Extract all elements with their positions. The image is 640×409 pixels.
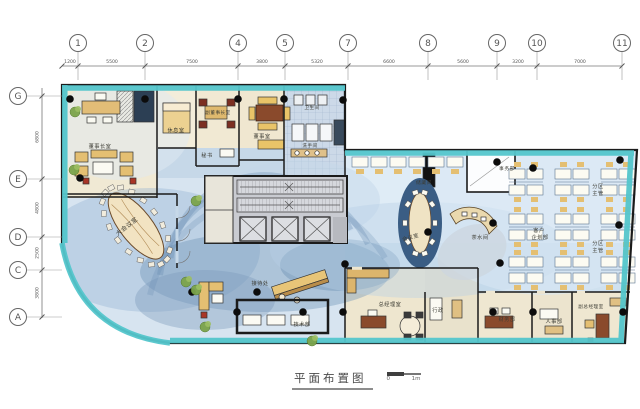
dimension-text: 3800 [256, 59, 268, 65]
chair [577, 197, 584, 202]
desk [527, 273, 543, 283]
column [280, 95, 288, 103]
elevator-3 [304, 217, 330, 241]
gm-sofa [347, 269, 389, 278]
conference-chair [117, 185, 124, 190]
room-label: 储藏间 [416, 179, 432, 186]
chair [531, 197, 538, 202]
desk [555, 169, 571, 179]
grid-bubble-number: 2 [142, 39, 148, 49]
deputy-gm-desk [596, 314, 609, 338]
floor-plan-sheet: 1245789101112005500750038005320660056003… [0, 0, 640, 409]
chair [577, 162, 584, 167]
chair [514, 162, 521, 167]
dimension-text: 5320 [311, 59, 323, 65]
desk [352, 157, 368, 167]
meeting-chair [433, 220, 437, 226]
chair [560, 242, 567, 247]
desk [601, 230, 617, 240]
column [253, 288, 261, 296]
room-label: 休息室 [167, 126, 184, 134]
grid-bubble-letter: G [15, 92, 22, 102]
room-label: 财务部 [498, 315, 515, 323]
toilet-stall [306, 124, 318, 141]
chair [577, 242, 584, 247]
room-label: 技术部 [293, 320, 310, 328]
grid-bubble-number: 5 [282, 39, 288, 49]
chair [531, 285, 538, 290]
grid-bubble-letter: A [15, 313, 22, 323]
scale-zero-label: 0 [387, 376, 391, 382]
dimension-text: 1200 [64, 59, 76, 65]
chair [432, 169, 440, 174]
drawing-title: 平面布置图 [292, 370, 373, 390]
chair [606, 207, 613, 212]
desk [390, 157, 406, 167]
grid-bubble-number: 11 [616, 39, 627, 49]
desk [428, 157, 444, 167]
conference-chair [166, 235, 171, 241]
gm-desk [361, 316, 386, 328]
chair [531, 242, 538, 247]
chair [560, 250, 567, 255]
desk [447, 157, 463, 167]
room-label: 茶水间 [471, 233, 488, 241]
chair [375, 169, 383, 174]
column [529, 164, 537, 172]
desk [555, 185, 571, 195]
desk [573, 185, 589, 195]
chair [394, 169, 402, 174]
room-label: 分区 [592, 182, 603, 190]
dimension-text: 7000 [574, 59, 586, 65]
chair [560, 197, 567, 202]
gm-round-table [400, 316, 420, 336]
desk [555, 257, 571, 267]
dimension-text: 5600 [457, 59, 469, 65]
column [616, 156, 624, 164]
building-core [205, 176, 347, 243]
chair [514, 285, 521, 290]
conference-chair [148, 262, 155, 267]
grid-bubble-letter: C [15, 266, 21, 276]
dimension-text: 4800 [35, 202, 41, 214]
director-table [256, 105, 283, 121]
grid-bubble-number: 7 [345, 39, 351, 49]
column [529, 308, 537, 316]
chair [413, 169, 421, 174]
desk [509, 185, 525, 195]
chair [514, 197, 521, 202]
column [615, 221, 623, 229]
grid-bubble-number: 9 [494, 39, 500, 49]
room-label: 副总经理室 [578, 303, 603, 310]
desk [371, 157, 387, 167]
chair [606, 285, 613, 290]
secretary-desk [220, 149, 234, 157]
desk [573, 273, 589, 283]
desk [509, 257, 525, 267]
room-label: 人事部 [545, 317, 562, 325]
desk [509, 230, 525, 240]
floor-plan-drawing: 1245789101112005500750038005320660056003… [0, 0, 640, 409]
column [339, 96, 347, 104]
column [339, 308, 347, 316]
chair [606, 250, 613, 255]
column [489, 219, 497, 227]
column [141, 95, 149, 103]
conference-chair [137, 257, 144, 263]
desk [409, 157, 425, 167]
desk [509, 273, 525, 283]
desk [601, 257, 617, 267]
column [233, 308, 241, 316]
chair [560, 207, 567, 212]
desk [573, 257, 589, 267]
column [619, 308, 627, 316]
room-label: 总经理室 [379, 300, 402, 308]
chair [514, 207, 521, 212]
room-label: 卫生间 [304, 104, 319, 111]
desk [527, 185, 543, 195]
chair [577, 285, 584, 290]
grid-bubble-letter: E [15, 175, 21, 185]
chair [531, 250, 538, 255]
desk [555, 273, 571, 283]
room-label: 分区 [592, 239, 603, 247]
grid-bubble-number: 4 [235, 39, 241, 49]
dimension-text: 3800 [35, 287, 41, 299]
elevator-2 [272, 217, 298, 241]
column [493, 158, 501, 166]
toilet-stall [292, 124, 304, 141]
room-label: 接待处 [251, 279, 268, 287]
column [489, 308, 497, 316]
column [299, 308, 307, 316]
room-label: 董事室 [253, 132, 270, 140]
column [341, 260, 349, 268]
desk [573, 230, 589, 240]
chair [514, 242, 521, 247]
room-label: 洗手间 [302, 142, 317, 149]
dimension-text: 5500 [106, 59, 118, 65]
room-label: 副董事长室 [205, 109, 230, 116]
column [424, 228, 432, 236]
scale-unit-label: 1m [412, 376, 421, 382]
desk [601, 169, 617, 179]
room-label: 客户 [533, 226, 544, 234]
chair [560, 285, 567, 290]
desk [527, 257, 543, 267]
desk [601, 214, 617, 224]
chair [531, 207, 538, 212]
dimension-text: 7500 [186, 59, 198, 65]
desk [573, 214, 589, 224]
room-label: 主管 [592, 189, 603, 197]
chair [577, 250, 584, 255]
room-label: 秘书 [201, 151, 212, 159]
coffee-table [93, 162, 113, 174]
chair [451, 169, 459, 174]
room-label: 主管 [592, 246, 603, 254]
chair [514, 250, 521, 255]
meeting-table [409, 193, 431, 253]
chair [577, 207, 584, 212]
scale-bar: 0 1m [387, 373, 421, 382]
service-rooms [205, 176, 233, 243]
grid-bubble-number: 1 [75, 39, 81, 49]
dimension-text: 6600 [383, 59, 395, 65]
room-label: 董事长室 [89, 142, 112, 150]
chair [606, 242, 613, 247]
dimension-text: 6800 [35, 131, 41, 143]
grid-bubble-number: 8 [425, 39, 431, 49]
chairman-desk [82, 101, 120, 114]
meeting-chair [403, 220, 407, 226]
grid-bubble-number: 10 [531, 39, 543, 49]
desk [555, 230, 571, 240]
room-label: 行政 [432, 306, 444, 314]
chair [606, 197, 613, 202]
elevator-1 [240, 217, 266, 241]
conference-chair [102, 210, 107, 216]
grid-bubble-letter: D [15, 233, 22, 243]
chair [560, 162, 567, 167]
desk [555, 214, 571, 224]
chair [356, 169, 364, 174]
room-label: 企划部 [531, 233, 548, 241]
column [234, 95, 242, 103]
desk [573, 169, 589, 179]
desk [527, 214, 543, 224]
toilet-stall [320, 124, 332, 141]
dimension-text: 3200 [512, 59, 524, 65]
title-block: 平面布置图 0 1m [292, 370, 421, 390]
dimension-text: 2500 [35, 247, 41, 259]
core-shaft [333, 217, 347, 243]
desk [509, 214, 525, 224]
chair [606, 162, 613, 167]
desk [601, 273, 617, 283]
scale-bar-line [387, 373, 421, 375]
room-label: 事务部 [499, 165, 515, 172]
column [76, 174, 84, 182]
column [66, 95, 74, 103]
column [496, 259, 504, 267]
